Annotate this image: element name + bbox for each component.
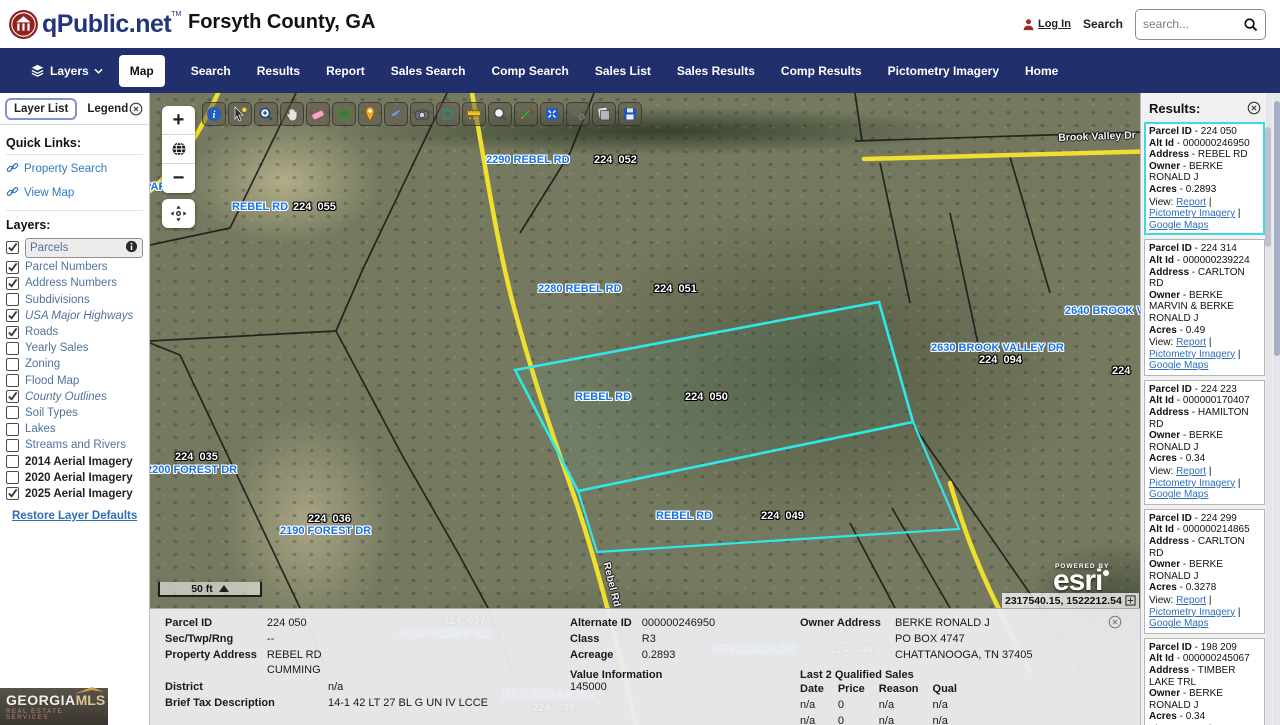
- layer-row-county-outlines: County Outlines: [6, 389, 143, 405]
- layers-icon: [30, 63, 45, 78]
- field-value: 14-1 42 LT 27 BL G UN IV LCCE: [328, 697, 488, 713]
- field-value: PO BOX 4747: [895, 633, 1033, 649]
- quick-link-property-search[interactable]: Property Search: [6, 157, 143, 181]
- scale-label: 50 ft: [191, 583, 213, 595]
- map-label-address: REBEL RD: [232, 201, 288, 213]
- pictometry-camera-tool-button[interactable]: [410, 102, 434, 126]
- google-maps-link[interactable]: Google Maps: [1149, 360, 1208, 371]
- field-value: 000000246950: [642, 617, 715, 633]
- nav-item-sales-search[interactable]: Sales Search: [391, 64, 466, 78]
- layer-row-subdivisions: Subdivisions: [6, 292, 143, 308]
- field-value: --: [267, 633, 322, 649]
- owner-address-table: Owner AddressBERKE RONALD J PO BOX 4747 …: [800, 617, 1033, 664]
- layer-row-parcel-numbers: Parcel Numbers: [6, 259, 143, 275]
- field-value: 0.2893: [642, 649, 715, 665]
- quick-link-view-map[interactable]: View Map: [6, 181, 143, 205]
- swipe-tool-button[interactable]: [384, 102, 408, 126]
- result-view-links: View: Report | Pictometry Imagery | Goog…: [1149, 337, 1260, 372]
- qpublic-logo-link[interactable]: qPublic.net TM: [8, 8, 181, 41]
- field-value: R3: [642, 633, 715, 649]
- layer-checkbox-2014-aerial-imagery[interactable]: [6, 455, 19, 468]
- layer-checkbox-subdivisions[interactable]: [6, 293, 19, 306]
- result-view-links: View: Report | Pictometry Imagery | Goog…: [1149, 595, 1260, 630]
- login-link[interactable]: Log In: [1022, 18, 1071, 31]
- layer-row-lakes: Lakes: [6, 421, 143, 437]
- map-label-address: 2200 FOREST DR: [150, 464, 237, 476]
- nav-layers-label: Layers: [50, 64, 89, 78]
- map-label-parcel: 224 055: [293, 201, 336, 213]
- result-field-acres: Acres - 0.3278: [1149, 582, 1260, 594]
- result-field-owner: Owner - BERKE RONALD J: [1149, 430, 1260, 453]
- layer-checkbox-usa-major-highways[interactable]: [6, 309, 19, 322]
- map-label-parcel: 224 051: [654, 283, 697, 295]
- pictometry-imagery-link[interactable]: Pictometry Imagery: [1149, 607, 1235, 618]
- layer-row-flood-map: Flood Map: [6, 373, 143, 389]
- nav-layers-menu[interactable]: Layers: [30, 63, 103, 78]
- qpublic-map-app: qPublic.net TM Forsyth County, GA Log In…: [0, 0, 1280, 725]
- pictometry-imagery-link[interactable]: Pictometry Imagery: [1149, 478, 1235, 489]
- result-field-parcel_id: Parcel ID - 198 209: [1149, 642, 1260, 654]
- map-label-address: 2280 REBEL RD: [538, 283, 622, 295]
- marker-tool-tool-button[interactable]: [358, 102, 382, 126]
- identify-tool-button[interactable]: i: [202, 102, 226, 126]
- header-search-box: [1135, 9, 1266, 40]
- layer-checkbox-2025-aerial-imagery[interactable]: [6, 487, 19, 500]
- login-label: Log In: [1038, 18, 1071, 30]
- zoom-to-selection-tool-button[interactable]: [254, 102, 278, 126]
- link-icon: [6, 185, 19, 201]
- map-label-address: 2640 BROOK V: [1065, 305, 1144, 317]
- field-value: REBEL RD: [267, 649, 322, 665]
- nav-item-sales-list[interactable]: Sales List: [595, 64, 651, 78]
- nav-item-report[interactable]: Report: [326, 64, 365, 78]
- result-field-parcel_id: Parcel ID - 224 314: [1149, 243, 1260, 255]
- layer-row-usa-major-highways: USA Major Highways: [6, 308, 143, 324]
- home-extent-button[interactable]: [162, 135, 195, 164]
- coordinates-grid-icon[interactable]: [1125, 595, 1136, 606]
- layer-checkbox-streams-and-rivers[interactable]: [6, 439, 19, 452]
- field-label: Parcel ID: [165, 617, 267, 633]
- field-label: Sec/Twp/Rng: [165, 633, 267, 649]
- nav-item-comp-search[interactable]: Comp Search: [491, 64, 568, 78]
- county-title: Forsyth County, GA: [188, 11, 375, 34]
- value-information: Value Information 145000: [570, 669, 662, 693]
- result-field-owner: Owner - BERKE RONALD J: [1149, 559, 1260, 582]
- scale-triangle-icon: [219, 585, 229, 592]
- main-nav: Layers MapSearchResultsReportSales Searc…: [0, 48, 1280, 93]
- layer-checkbox-address-numbers[interactable]: [6, 277, 19, 290]
- layer-label: Soil Types: [25, 407, 78, 419]
- layer-checkbox-parcels[interactable]: [6, 241, 19, 254]
- result-field-owner: Owner - BERKE RONALD J: [1149, 161, 1260, 184]
- value-information-label: Value Information: [570, 669, 662, 681]
- layer-row-streams-and-rivers: Streams and Rivers: [6, 437, 143, 453]
- results-scrollbar[interactable]: [1266, 93, 1272, 725]
- coordinates-readout: 2317540.15, 1522212.54: [1002, 593, 1139, 608]
- layer-row-yearly-sales: Yearly Sales: [6, 340, 143, 356]
- layer-checkbox-roads[interactable]: [6, 326, 19, 339]
- layer-checkbox-flood-map[interactable]: [6, 374, 19, 387]
- nav-item-comp-results[interactable]: Comp Results: [781, 64, 862, 78]
- google-maps-link[interactable]: Google Maps: [1149, 220, 1208, 231]
- layer-label: Parcel Numbers: [25, 261, 107, 273]
- result-view-links: View: Report | Pictometry Imagery | Goog…: [1149, 197, 1260, 232]
- layer-row-roads: Roads: [6, 324, 143, 340]
- field-label: Alternate ID: [570, 617, 642, 633]
- nav-item-sales-results[interactable]: Sales Results: [677, 64, 755, 78]
- restore-layer-defaults-link[interactable]: Restore Layer Defaults: [12, 510, 137, 522]
- result-field-acres: Acres - 0.34: [1149, 711, 1260, 723]
- result-field-alt_id: Alt Id - 000000246950: [1149, 138, 1260, 150]
- scale-bar: 50 ft: [158, 582, 262, 597]
- sales-col-reason: Reason: [879, 683, 933, 699]
- sales-row: n/a0n/an/a: [800, 699, 971, 715]
- layer-row-2020-aerial-imagery: 2020 Aerial Imagery: [6, 470, 143, 486]
- layer-label: 2014 Aerial Imagery: [25, 456, 133, 468]
- field-value: BERKE RONALD J: [895, 617, 1033, 633]
- layer-row-address-numbers: Address Numbers: [6, 275, 143, 291]
- chevron-down-icon: [94, 68, 103, 74]
- measure-distance-tool-button[interactable]: [462, 102, 486, 126]
- layer-row-parcels: Parcels: [6, 236, 143, 259]
- page-scrollbar-thumb[interactable]: [1274, 101, 1280, 356]
- result-field-address: Address - REBEL RD: [1149, 149, 1260, 161]
- result-field-alt_id: Alt Id - 000000239224: [1149, 255, 1260, 267]
- result-card-224-223[interactable]: Parcel ID - 224 223Alt Id - 000000170407…: [1144, 380, 1265, 505]
- link-icon: [6, 161, 19, 177]
- result-field-owner: Owner - BERKE RONALD J: [1149, 688, 1260, 711]
- tagline-text: REAL ESTATE SERVICES: [6, 709, 108, 721]
- layer-label: County Outlines: [25, 391, 107, 403]
- result-field-address: Address - CARLTON RD: [1149, 267, 1260, 290]
- selected-parcel-outline: [515, 302, 959, 552]
- google-maps-link[interactable]: Google Maps: [1149, 618, 1208, 629]
- qualified-sales: Last 2 Qualified Sales DatePriceReasonQu…: [800, 669, 971, 725]
- layer-selected-box[interactable]: Parcels: [25, 238, 143, 258]
- layer-label: 2020 Aerial Imagery: [25, 472, 133, 484]
- sales-col-price: Price: [838, 683, 879, 699]
- layer-label: Roads: [25, 326, 58, 338]
- field-label: Class: [570, 633, 642, 649]
- sales-row: n/a0n/an/a: [800, 715, 971, 725]
- layer-label: Yearly Sales: [25, 342, 89, 354]
- field-label: Property Address: [165, 649, 267, 665]
- svg-text:i: i: [213, 110, 216, 121]
- nav-item-home[interactable]: Home: [1025, 64, 1058, 78]
- result-field-address: Address - TIMBER LAKE TRL: [1149, 665, 1260, 688]
- gold-roof-icon: [74, 686, 104, 694]
- layer-checkbox-county-outlines[interactable]: [6, 390, 19, 403]
- field-label: Acreage: [570, 649, 642, 665]
- layer-row-soil-types: Soil Types: [6, 405, 143, 421]
- save-map-tool-button[interactable]: [618, 102, 642, 126]
- logo-text: qPublic.net: [42, 8, 171, 41]
- result-card-224-299[interactable]: Parcel ID - 224 299Alt Id - 000000214865…: [1144, 509, 1265, 634]
- map-label-address: 2630 BROOK VALLEY DR: [931, 342, 1064, 354]
- export-tool-button[interactable]: [592, 102, 616, 126]
- tab-layer-list[interactable]: Layer List: [5, 98, 77, 120]
- nav-item-results[interactable]: Results: [257, 64, 300, 78]
- layer-label: Zoning: [25, 358, 60, 370]
- sales-col-date: Date: [800, 683, 838, 699]
- header: qPublic.net TM Forsyth County, GA Log In…: [0, 0, 1280, 48]
- nav-item-pictometry-imagery[interactable]: Pictometry Imagery: [888, 64, 999, 78]
- map-label-parcel: 224 035: [175, 451, 218, 463]
- parcel-boundary-lines: [150, 93, 1273, 671]
- layer-checkbox-parcel-numbers[interactable]: [6, 261, 19, 274]
- results-card-list: Parcel ID - 224 050Alt Id - 000000246950…: [1141, 122, 1273, 725]
- eraser-tool-button[interactable]: [306, 102, 330, 126]
- result-card-198-209[interactable]: Parcel ID - 198 209Alt Id - 000000245067…: [1144, 638, 1265, 725]
- result-field-alt_id: Alt Id - 000000245067: [1149, 653, 1260, 665]
- tools-tool-button[interactable]: [566, 102, 590, 126]
- header-search-label: Search: [1083, 17, 1123, 31]
- pictometry-imagery-link[interactable]: Pictometry Imagery: [1149, 208, 1235, 219]
- quick-links-list: Property SearchView Map: [6, 157, 143, 205]
- layer-row-2025-aerial-imagery: 2025 Aerial Imagery: [6, 486, 143, 502]
- result-field-parcel_id: Parcel ID - 224 050: [1149, 126, 1260, 138]
- parcel-info-close-icon[interactable]: [1108, 615, 1122, 632]
- field-value: n/a: [328, 681, 488, 697]
- divider: [6, 210, 143, 211]
- layer-label: USA Major Highways: [25, 310, 133, 322]
- results-scrollbar-thumb[interactable]: [1265, 127, 1271, 247]
- layers-heading: Layers:: [6, 213, 143, 236]
- layer-label: 2025 Aerial Imagery: [25, 488, 133, 500]
- nav-item-search[interactable]: Search: [191, 64, 231, 78]
- parcel-info-panel: Parcel ID224 050 Sec/Twp/Rng-- Property …: [150, 608, 1140, 725]
- field-value: CHATTANOOGA, TN 37405: [895, 649, 1033, 665]
- value-information-value: 145000: [570, 681, 662, 693]
- result-view-links: View: Report | Pictometry Imagery | Goog…: [1149, 466, 1260, 501]
- layer-panel: Layer List Legend Quick Links: Property …: [0, 93, 150, 725]
- search-icon[interactable]: [1243, 17, 1258, 32]
- esri-dot: [1103, 570, 1109, 576]
- map-label-address: REBEL RD: [656, 510, 712, 522]
- georgia-mls-logo[interactable]: GEORGIAMLS REAL ESTATE SERVICES: [0, 688, 108, 725]
- result-card-224-314[interactable]: Parcel ID - 224 314Alt Id - 000000239224…: [1144, 239, 1265, 376]
- magnifier-tool-button[interactable]: [488, 102, 512, 126]
- parcel-summary-table: Parcel ID224 050 Sec/Twp/Rng-- Property …: [165, 617, 322, 680]
- nav-items: MapSearchResultsReportSales SearchComp S…: [119, 55, 1059, 87]
- select-by-shape-tool-button[interactable]: [228, 102, 252, 126]
- result-field-address: Address - CARLTON RD: [1149, 536, 1260, 559]
- layer-checkbox-zoning[interactable]: [6, 358, 19, 371]
- measure-area-tool-button[interactable]: [436, 102, 460, 126]
- draw-tool-button[interactable]: [514, 102, 538, 126]
- qpublic-courthouse-icon: [8, 9, 39, 40]
- map-label-parcel: 224 052: [594, 154, 637, 166]
- result-field-address: Address - HAMILTON RD: [1149, 407, 1260, 430]
- georgia-text: GEORGIA: [6, 693, 76, 707]
- zoom-extent-tool-button[interactable]: [540, 102, 564, 126]
- add-selection-tool-button[interactable]: [332, 102, 356, 126]
- result-field-acres: Acres - 0.34: [1149, 453, 1260, 465]
- results-panel: Results: Parcel ID - 224 050Alt Id - 000…: [1140, 93, 1273, 725]
- field-label: Brief Tax Description: [165, 697, 328, 713]
- map-label-parcel: 224 050: [685, 391, 728, 403]
- layer-label: Flood Map: [25, 375, 79, 387]
- result-field-parcel_id: Parcel ID - 224 223: [1149, 384, 1260, 396]
- result-field-parcel_id: Parcel ID - 224 299: [1149, 513, 1260, 525]
- mls-text: MLS: [76, 693, 106, 707]
- map-label-parcel: 224 094: [979, 354, 1022, 366]
- map-label-address: 2190 FOREST DR: [280, 525, 371, 537]
- coordinates-value: 2317540.15, 1522212.54: [1005, 595, 1122, 607]
- layer-panel-tabs: Layer List Legend: [0, 93, 149, 125]
- layer-row-zoning: Zoning: [6, 356, 143, 372]
- layer-label: Streams and Rivers: [25, 439, 126, 451]
- person-icon: [1022, 18, 1035, 31]
- map-label-address: 2290 REBEL RD: [486, 154, 570, 166]
- result-field-owner: Owner - BERKE MARVIN & BERKE RONALD J: [1149, 290, 1260, 325]
- layer-panel-close-icon[interactable]: [129, 102, 143, 121]
- sales-col-qual: Qual: [933, 683, 971, 699]
- map-label-parcel: 224: [1112, 365, 1130, 377]
- field-value: CUMMING: [267, 664, 322, 680]
- result-field-acres: Acres - 0.49: [1149, 325, 1260, 337]
- map-toolbar: i: [202, 102, 642, 126]
- result-field-alt_id: Alt Id - 000000214865: [1149, 524, 1260, 536]
- result-card-224-050[interactable]: Parcel ID - 224 050Alt Id - 000000246950…: [1144, 122, 1265, 235]
- layer-checkbox-yearly-sales[interactable]: [6, 342, 19, 355]
- page-scrollbar[interactable]: [1273, 93, 1280, 725]
- search-input[interactable]: [1143, 17, 1243, 31]
- district-table: Districtn/a Brief Tax Description14-1 42…: [165, 681, 488, 713]
- layer-checkbox-2020-aerial-imagery[interactable]: [6, 471, 19, 484]
- layer-label: Parcels: [30, 242, 68, 254]
- pan-tool-button[interactable]: [162, 199, 195, 228]
- nav-item-map[interactable]: Map: [119, 55, 165, 87]
- field-label: District: [165, 681, 328, 697]
- powered-by-label: POWERED BY: [1053, 563, 1109, 570]
- map-label-street: Brook Valley Dr: [1058, 129, 1136, 144]
- field-label: Owner Address: [800, 617, 895, 633]
- map-label-street: Rebel Rd: [600, 561, 623, 608]
- layer-info-icon[interactable]: [125, 240, 138, 256]
- layer-label: Lakes: [25, 423, 56, 435]
- logo-trademark: TM: [171, 8, 181, 22]
- sales-heading: Last 2 Qualified Sales: [800, 669, 971, 681]
- layer-checkbox-soil-types[interactable]: [6, 406, 19, 419]
- zoom-out-button[interactable]: −: [162, 164, 195, 193]
- layer-label: Address Numbers: [25, 277, 117, 289]
- zoom-in-button[interactable]: +: [162, 106, 195, 135]
- layer-row-2014-aerial-imagery: 2014 Aerial Imagery: [6, 453, 143, 469]
- pictometry-imagery-link[interactable]: Pictometry Imagery: [1149, 349, 1235, 360]
- sales-table: DatePriceReasonQualn/a0n/an/an/a0n/an/a: [800, 683, 971, 725]
- result-field-acres: Acres - 0.2893: [1149, 184, 1260, 196]
- report-link[interactable]: Report: [1176, 595, 1206, 606]
- report-link[interactable]: Report: [1176, 466, 1206, 477]
- divider: [6, 154, 143, 155]
- report-link[interactable]: Report: [1176, 337, 1206, 348]
- field-value: 224 050: [267, 617, 322, 633]
- map-label-parcel: 224 049: [761, 510, 804, 522]
- globe-icon: [171, 141, 187, 157]
- quick-links-heading: Quick Links:: [6, 131, 143, 154]
- layers-list: ParcelsParcel NumbersAddress NumbersSubd…: [6, 236, 143, 502]
- report-link[interactable]: Report: [1176, 197, 1206, 208]
- alt-id-table: Alternate ID000000246950 ClassR3 Acreage…: [570, 617, 715, 664]
- layer-checkbox-lakes[interactable]: [6, 423, 19, 436]
- google-maps-link[interactable]: Google Maps: [1149, 489, 1208, 500]
- four-arrows-icon: [170, 205, 187, 222]
- map-label-parcel: 224 036: [308, 513, 351, 525]
- tab-legend[interactable]: Legend: [87, 103, 128, 115]
- map-label-address: REBEL RD: [575, 391, 631, 403]
- zoom-control: + −: [162, 106, 195, 193]
- results-close-icon[interactable]: [1247, 101, 1261, 120]
- layer-label: Subdivisions: [25, 294, 90, 306]
- result-field-alt_id: Alt Id - 000000170407: [1149, 395, 1260, 407]
- esri-logo: POWERED BY esri: [1053, 563, 1109, 595]
- pan-tool-button[interactable]: [280, 102, 304, 126]
